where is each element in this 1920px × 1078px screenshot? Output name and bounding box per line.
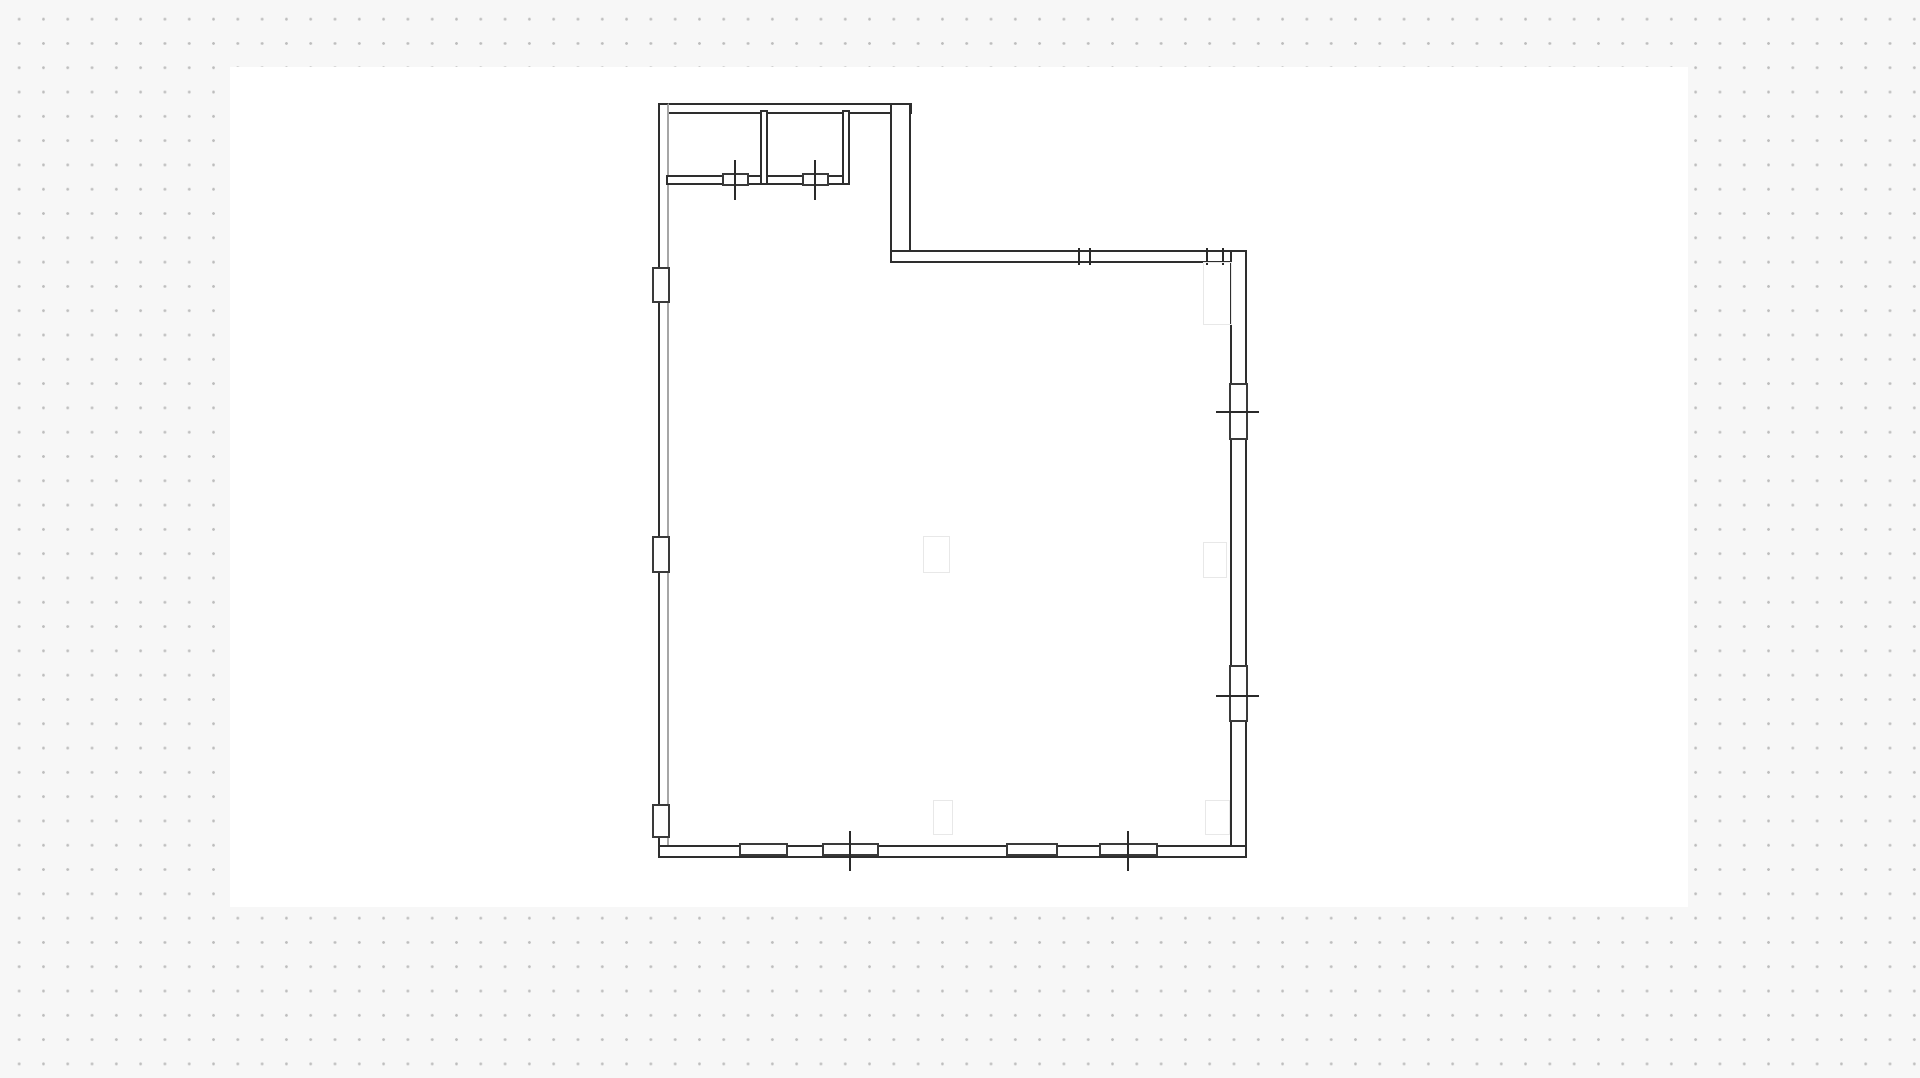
joint-tick-top-1	[1078, 248, 1080, 265]
window-bottom-2[interactable]	[1006, 843, 1058, 856]
placeholder-right-bottom[interactable]	[1205, 800, 1230, 835]
editor-canvas[interactable]	[0, 0, 1920, 1078]
window-bottom-1[interactable]	[739, 843, 788, 856]
joint-tick-top-2	[1089, 248, 1091, 265]
window-tick-right-2	[1216, 695, 1259, 697]
wall-left[interactable]	[658, 103, 669, 858]
window-left-1[interactable]	[652, 267, 670, 303]
window-tick-right-1	[1216, 411, 1259, 413]
placeholder-right-middle[interactable]	[1203, 542, 1227, 578]
artboard[interactable]	[230, 67, 1688, 907]
wall-top-main[interactable]	[890, 250, 1247, 263]
placeholder-right-top[interactable]	[1203, 262, 1232, 325]
wall-right[interactable]	[1230, 250, 1247, 858]
floor-plan[interactable]	[0, 0, 1920, 1078]
window-right-2[interactable]	[1229, 665, 1248, 722]
placeholder-center[interactable]	[923, 536, 950, 573]
wall-step-right-of-upper[interactable]	[890, 103, 911, 263]
placeholder-bottom-center[interactable]	[933, 800, 953, 835]
window-left-2[interactable]	[652, 536, 670, 573]
wall-storage-divider[interactable]	[760, 110, 768, 185]
door-tick-storage-1	[734, 160, 736, 200]
door-tick-storage-2	[814, 160, 816, 200]
door-tick-bottom-1	[849, 831, 851, 871]
window-left-3[interactable]	[652, 804, 670, 838]
door-tick-bottom-2	[1127, 831, 1129, 871]
wall-storage-right[interactable]	[842, 110, 850, 185]
wall-top-upper-section[interactable]	[658, 103, 912, 114]
